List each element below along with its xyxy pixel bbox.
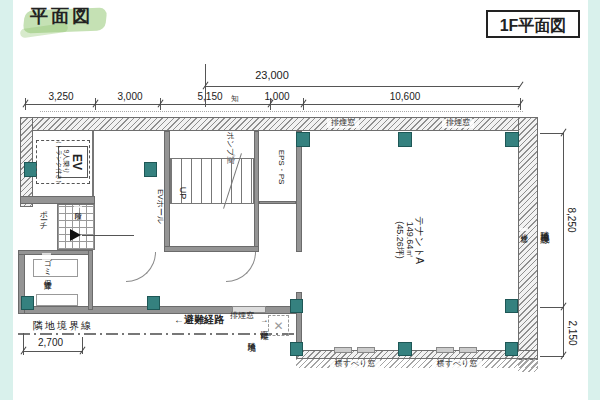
column [147, 296, 160, 310]
dim-line-right [563, 133, 564, 357]
smoke-window-label: 排煙窓 [230, 312, 254, 321]
distance-note-col2: 隣地境 [246, 335, 255, 338]
steps-label: 階段 [74, 206, 82, 208]
wall-tenant-west-upper [296, 131, 302, 252]
wall-ev-shaft-right [92, 131, 94, 196]
wall-corner-hatch [518, 359, 538, 372]
wall-stairs-east [254, 131, 259, 252]
plan-label-box: 1F平面図 [486, 10, 580, 38]
boundary-line-label-right: 隣地境界線 [539, 224, 549, 229]
column [505, 132, 519, 147]
column [398, 132, 412, 147]
smoke-window-label: 排煙窓 [520, 228, 528, 231]
window-symbol [436, 347, 454, 353]
garbage-shelf [36, 294, 78, 306]
tenant-label-block: テナントA 149.64㎡ (45.26坪) [387, 212, 425, 268]
distance-note-col1: ↑距離は [259, 319, 268, 336]
eps-ps-label: EPS・PS [271, 145, 285, 190]
wall-garbage-right [88, 250, 93, 310]
entrance-line [82, 235, 134, 236]
column [290, 299, 303, 313]
entrance-arrow-icon [70, 229, 81, 241]
dim-segment: 1,000 [247, 91, 307, 102]
wall-ev-shaft-bottom [20, 196, 95, 204]
dim-segment: 3,250 [31, 91, 91, 102]
boundary-line-label-left: 隣地境界線 [33, 320, 93, 331]
wall-garbage-top [18, 250, 92, 255]
wall-right [518, 117, 538, 360]
porch-tile-area [57, 204, 95, 250]
window-symbol [357, 347, 375, 353]
sliding-window-label: 横すべり窓 [432, 360, 482, 369]
column [505, 342, 518, 356]
page-title: 平面図 [30, 7, 93, 27]
elevator-capacity: 9人乗り [62, 127, 70, 197]
smoke-window-label: 排煙窓 [442, 119, 474, 128]
ev-hall-label: EVホール [149, 184, 164, 230]
dim-line-total [205, 86, 520, 87]
axis-note-glyph: 知 [231, 95, 239, 104]
column [290, 342, 303, 356]
dim-segment: 3,000 [100, 91, 160, 102]
column [296, 132, 310, 147]
dim-right-upper: 8,250 [565, 200, 577, 240]
column [21, 296, 34, 310]
smoke-window-label: 排煙窓 [327, 119, 359, 128]
sliding-window-label: 横すべり窓 [330, 360, 380, 369]
tenant-name: テナントA [414, 212, 425, 268]
stairs-up-label: UP [173, 178, 187, 208]
elevator-label-block: EV 9人乗り （トランク付き） [43, 127, 83, 197]
porch-label: ポーチ [38, 205, 47, 226]
dim-segment: 10,600 [370, 91, 440, 102]
wall-eps-south [259, 201, 296, 204]
x-mark-icon: ✕ [273, 319, 283, 333]
dim-left-bottom: 2,700 [38, 337, 63, 348]
opening-symbol-box: ✕ [268, 315, 289, 336]
dim-total-width: 23,000 [222, 69, 322, 81]
garbage-room-label: ゴミ保管庫 [42, 253, 51, 276]
column [505, 299, 518, 313]
dim-line-segments [25, 104, 520, 105]
dim-right-lower: 2,150 [566, 314, 578, 352]
evacuation-route-label: ←避難経路 [174, 314, 224, 325]
window-symbol [459, 347, 477, 353]
elevator-name: EV [70, 127, 83, 197]
window-symbol [334, 347, 352, 353]
floor-plan-canvas: 平面図 1F平面図 23,000 3,250 3,000 5,150 知 1,0… [0, 0, 600, 400]
elevator-trunk-note: （トランク付き） [56, 127, 63, 197]
tenant-area-m2: 149.64㎡ [404, 212, 414, 268]
column [398, 342, 412, 356]
tenant-area-tsubo: (45.26坪) [394, 212, 404, 268]
garbage-shelf [33, 259, 78, 277]
plan-label: 1F平面図 [488, 17, 578, 35]
wall-outer-dotted-line [40, 111, 523, 112]
dim-line-bottom-left [23, 351, 83, 352]
wall-bottom-right [296, 350, 538, 359]
column [144, 162, 157, 177]
